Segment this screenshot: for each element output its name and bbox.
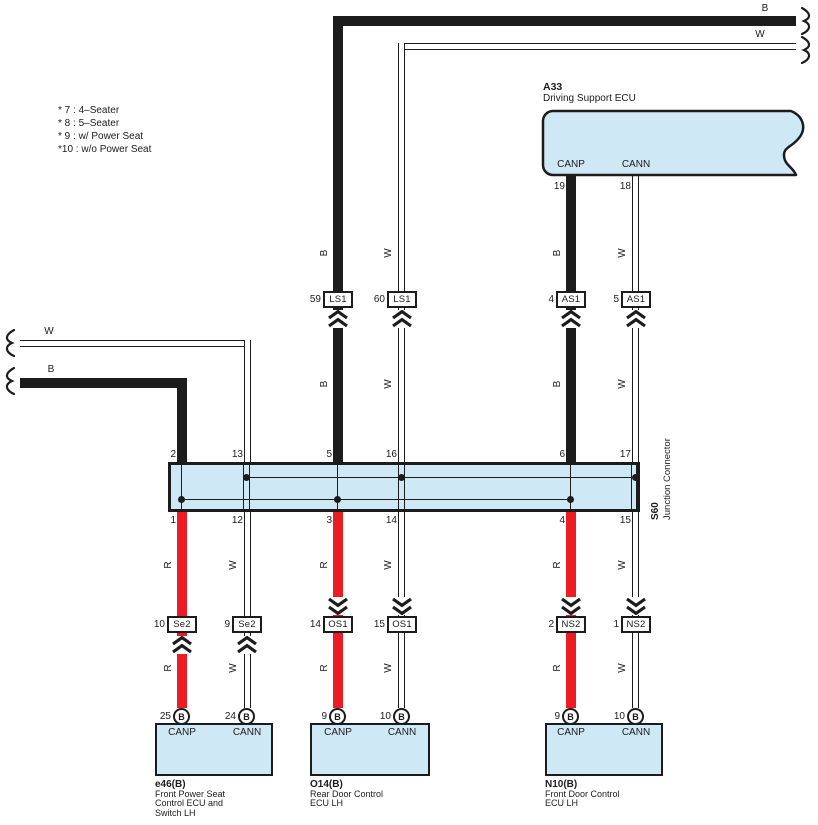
junction-dot	[243, 474, 250, 481]
junction-inner-line	[249, 465, 250, 509]
wire-color-label-w: W	[228, 558, 240, 572]
wire-color-label-b: B	[552, 377, 564, 391]
a33-ecu-name: Driving Support ECU	[543, 93, 636, 104]
connector-pin-number: 1	[595, 619, 619, 630]
junction-pin-number: 5	[312, 449, 332, 460]
wire-black-top-trunk	[333, 16, 800, 26]
wire-white-top-trunk	[398, 43, 800, 50]
wire-color-label-r: R	[319, 558, 331, 572]
wire-red-col1	[177, 511, 187, 708]
connector-id: OS1	[328, 619, 348, 630]
junction-inner-line	[398, 465, 399, 509]
ecu-pin-canp-label: CANP	[308, 727, 368, 738]
junction-pin-number: 15	[611, 515, 631, 526]
ecu-pin-number: 9	[536, 711, 560, 722]
junction-pin-number: 4	[545, 515, 565, 526]
connector-ls1: LS1	[387, 291, 417, 308]
wiring-diagram-canvas: * 7 : 4–Seater * 8 : 5–Seater * 9 : w/ P…	[0, 0, 818, 825]
ecu-pin-number: 10	[367, 711, 391, 722]
a33-pin-canp-label: CANP	[541, 159, 601, 170]
wire-color-label-b: B	[758, 3, 772, 15]
wire-continuation-icon	[796, 7, 814, 35]
legend-item: *10 : w/o Power Seat	[58, 143, 151, 156]
a33-pin-number: 19	[545, 181, 565, 192]
wire-color-label-w: W	[753, 29, 767, 41]
wire-color-label-r: R	[319, 661, 331, 675]
junction-connector-box	[168, 462, 640, 512]
connector-as1: AS1	[556, 291, 586, 308]
legend-item: * 8 : 5–Seater	[58, 117, 151, 130]
ecu-pin-cann-label: CANN	[606, 727, 666, 738]
junction-pin-number: 16	[377, 449, 397, 460]
a33-ecu-id: A33	[543, 81, 562, 93]
junction-inner-line	[636, 465, 637, 509]
junction-bus-canp	[182, 499, 571, 500]
connector-id: LS1	[329, 294, 347, 305]
junction-pin-number: 13	[223, 449, 243, 460]
junction-inner-line	[404, 465, 405, 509]
pin-code: B	[178, 712, 185, 722]
wire-white-ls1-vertical	[398, 43, 405, 462]
wire-white-left-vertical	[244, 340, 251, 462]
connector-os1: OS1	[387, 616, 417, 633]
wire-black-left-horizontal	[14, 378, 187, 388]
connector-pin-number: 9	[206, 619, 230, 630]
junction-dot	[567, 496, 574, 503]
chevron-up-icon	[326, 310, 350, 328]
junction-pin-number: 3	[312, 515, 332, 526]
wire-black-left-vertical	[177, 378, 187, 462]
junction-bus-cann	[247, 477, 636, 478]
connector-os1: OS1	[323, 616, 353, 633]
ecu-caption-n10: N10(B) Front Door Control ECU LH	[545, 779, 620, 809]
chevron-up-icon	[624, 310, 648, 328]
ecu-pin-cann-label: CANN	[372, 727, 432, 738]
connector-pin-number: 4	[530, 294, 554, 305]
wire-black-ls1-vertical	[333, 16, 343, 462]
pin-code: B	[398, 712, 405, 722]
connector-se2: Se2	[232, 616, 262, 633]
wire-color-label-b: B	[44, 364, 58, 376]
wire-color-label-r: R	[552, 661, 564, 675]
wire-color-label-w: W	[617, 246, 629, 260]
wire-color-label-w: W	[617, 661, 629, 675]
junction-pin-number: 1	[156, 515, 176, 526]
wire-color-label-w: W	[228, 661, 240, 675]
connector-id: AS1	[627, 294, 646, 305]
wire-color-label-w: W	[42, 326, 56, 338]
chevron-up-icon	[170, 636, 194, 654]
pin-code: B	[567, 712, 574, 722]
wire-color-label-b: B	[319, 246, 331, 260]
connector-ns2: NS2	[621, 616, 651, 633]
wire-color-label-w: W	[383, 558, 395, 572]
junction-pin-number: 12	[223, 515, 243, 526]
connector-pin-number: 59	[297, 294, 321, 305]
wire-color-label-w: W	[383, 246, 395, 260]
junction-dot	[334, 496, 341, 503]
wire-color-label-w: W	[383, 661, 395, 675]
connector-ns2: NS2	[556, 616, 586, 633]
connector-id: LS1	[393, 294, 411, 305]
ecu-caption-o14: O14(B) Rear Door Control ECU LH	[310, 779, 383, 809]
ecu-caption-e46: e46(B) Front Power Seat Control ECU and …	[155, 779, 225, 818]
junction-dot	[398, 474, 405, 481]
wire-color-label-b: B	[319, 377, 331, 391]
connector-id: OS1	[392, 619, 412, 630]
legend-item: * 7 : 4–Seater	[58, 104, 151, 117]
wire-continuation-icon	[2, 329, 20, 357]
wire-color-label-r: R	[552, 558, 564, 572]
junction-label: S60 Junction Connector	[650, 420, 676, 520]
wire-color-label-w: W	[383, 377, 395, 391]
wire-white-col2	[244, 511, 251, 708]
ecu-name-line: Switch LH	[155, 809, 225, 818]
junction-pin-number: 2	[156, 449, 176, 460]
chevron-up-icon	[235, 636, 259, 654]
junction-pin-number: 14	[377, 515, 397, 526]
junction-name: Junction Connector	[662, 420, 674, 520]
wire-color-label-r: R	[163, 558, 175, 572]
pin-code: B	[632, 712, 639, 722]
connector-id: Se2	[173, 619, 191, 630]
connector-id: NS2	[626, 619, 645, 630]
ecu-name-line: ECU LH	[545, 799, 620, 808]
junction-inner-line	[243, 465, 244, 509]
junction-dot	[178, 496, 185, 503]
chevron-down-icon	[326, 597, 350, 615]
chevron-down-icon	[390, 597, 414, 615]
junction-pin-number: 17	[611, 449, 631, 460]
ecu-name-line: ECU LH	[310, 799, 383, 808]
wire-color-label-r: R	[163, 661, 175, 675]
legend-item: * 9 : w/ Power Seat	[58, 130, 151, 143]
chevron-down-icon	[624, 597, 648, 615]
connector-pin-number: 10	[141, 619, 165, 630]
wire-color-label-b: B	[552, 246, 564, 260]
connector-pin-number: 14	[297, 619, 321, 630]
connector-pin-number: 5	[595, 294, 619, 305]
junction-id: S60	[650, 420, 662, 520]
connector-id: NS2	[561, 619, 580, 630]
junction-inner-line	[631, 465, 632, 509]
chevron-down-icon	[559, 597, 583, 615]
chevron-up-icon	[559, 310, 583, 328]
connector-as1: AS1	[621, 291, 651, 308]
connector-id: AS1	[562, 294, 581, 305]
ecu-pin-number: 9	[303, 711, 327, 722]
junction-pin-number: 6	[545, 449, 565, 460]
ecu-pin-number: 10	[601, 711, 625, 722]
ecu-pin-canp-label: CANP	[541, 727, 601, 738]
pin-code: B	[243, 712, 250, 722]
connector-pin-number: 2	[530, 619, 554, 630]
ecu-pin-number: 25	[147, 711, 171, 722]
chevron-up-icon	[390, 310, 414, 328]
wire-continuation-icon	[2, 367, 20, 395]
wire-white-left-horizontal	[14, 340, 251, 347]
ecu-pin-cann-label: CANN	[217, 727, 277, 738]
junction-dot	[632, 474, 639, 481]
legend-notes: * 7 : 4–Seater * 8 : 5–Seater * 9 : w/ P…	[58, 104, 151, 156]
connector-se2: Se2	[167, 616, 197, 633]
a33-pin-number: 18	[611, 181, 631, 192]
wire-color-label-w: W	[617, 558, 629, 572]
wire-continuation-icon	[796, 36, 814, 64]
a33-pin-cann-label: CANN	[606, 159, 666, 170]
wire-color-label-w: W	[617, 377, 629, 391]
ecu-pin-number: 24	[212, 711, 236, 722]
connector-pin-number: 60	[361, 294, 385, 305]
ecu-pin-canp-label: CANP	[152, 727, 212, 738]
connector-id: Se2	[238, 619, 256, 630]
connector-pin-number: 15	[361, 619, 385, 630]
pin-code: B	[334, 712, 341, 722]
connector-ls1: LS1	[323, 291, 353, 308]
